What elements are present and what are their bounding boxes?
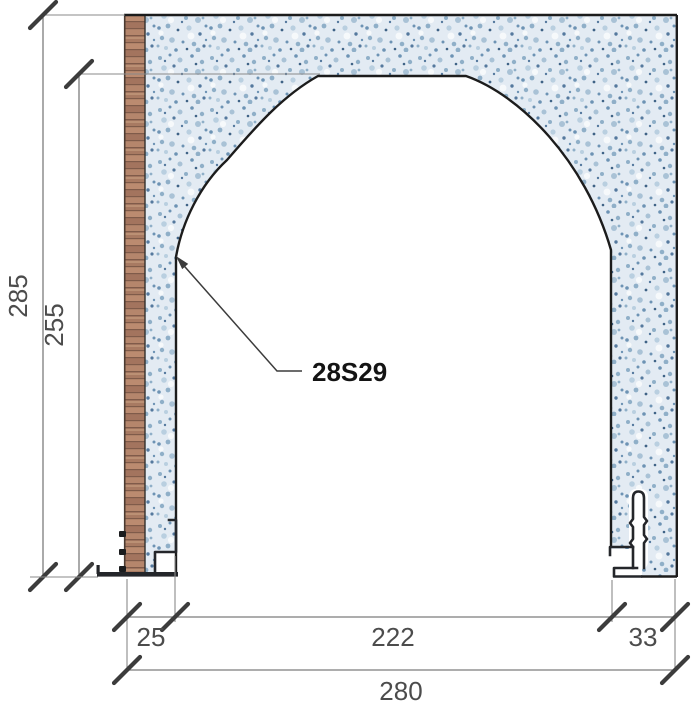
arch-opening-outline: [176, 76, 611, 573]
dim-value-overall-height: 285: [3, 274, 33, 317]
arch-section-drawing: 285 255 25 222 33 280 28S29: [0, 0, 696, 709]
dim-value-opening-height: 255: [39, 303, 69, 346]
dim-value-right-jamb: 33: [629, 622, 658, 652]
profile-notches: [154, 489, 648, 576]
floor-track-upturn: [97, 565, 100, 574]
leader-arrowhead: [176, 256, 188, 269]
dim-value-left-jamb: 25: [137, 622, 166, 652]
wall-plaster-section: [145, 15, 677, 576]
dimension-overall-height: 285: [3, 2, 125, 590]
dimension-overall-width: 280: [114, 657, 688, 706]
dim-value-opening-width: 222: [371, 622, 414, 652]
wood-stud: [124, 15, 145, 575]
dimension-row-segments: 25 222 33: [114, 556, 688, 672]
dim-value-overall-width: 280: [379, 676, 422, 706]
callout-label: 28S29: [312, 357, 387, 387]
floor-track-flange: [97, 572, 178, 577]
callout-28s29: 28S29: [176, 256, 387, 387]
technical-drawing-canvas: 285 255 25 222 33 280 28S29: [0, 0, 696, 709]
